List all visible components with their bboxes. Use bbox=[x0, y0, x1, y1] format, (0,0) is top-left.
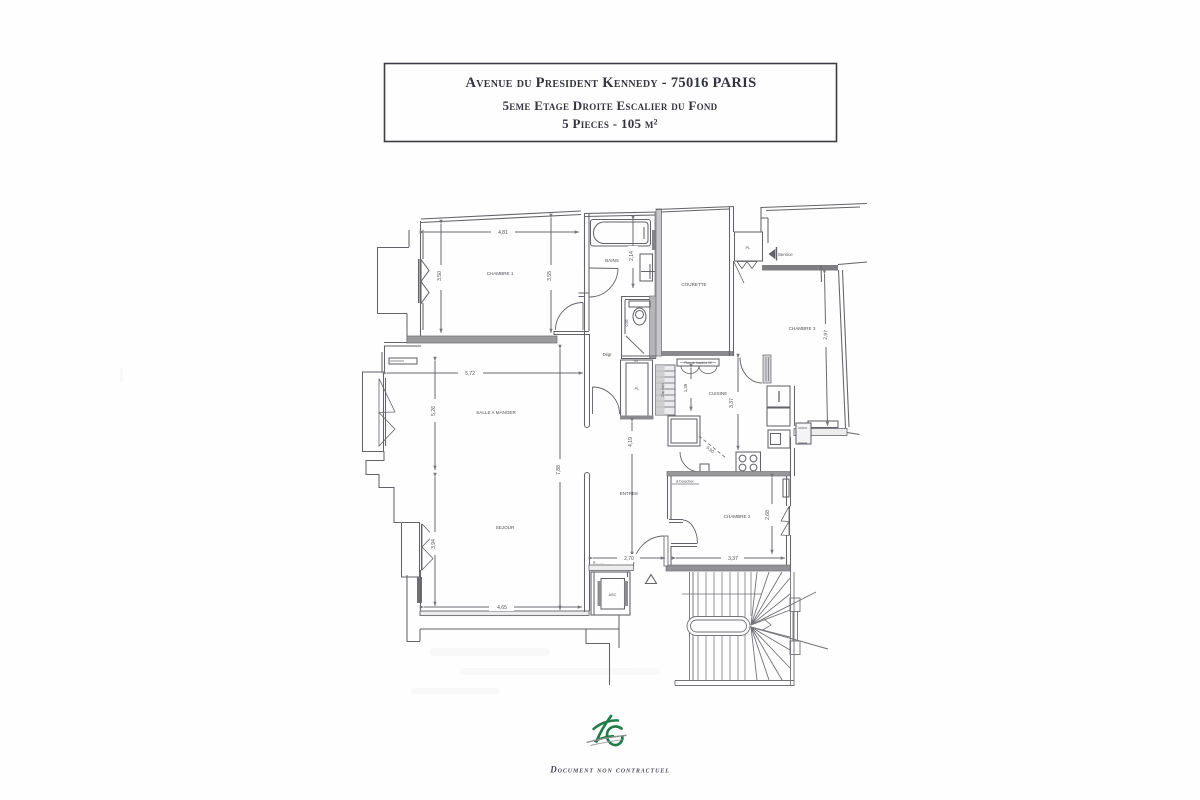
svg-text:SEJOUR: SEJOUR bbox=[496, 525, 515, 530]
svg-text:Avenue du President Kennedy -: Avenue du President Kennedy - 75016 PARI… bbox=[466, 75, 757, 91]
svg-text:4,81: 4,81 bbox=[498, 230, 508, 236]
svg-text:Document non contractuel: Document non contractuel bbox=[549, 765, 670, 775]
svg-text:4,19: 4,19 bbox=[628, 437, 634, 447]
svg-text:3,55: 3,55 bbox=[547, 271, 553, 281]
svg-text:3,37: 3,37 bbox=[728, 556, 738, 562]
svg-text:PL: PL bbox=[635, 386, 641, 391]
svg-text:ENTREE: ENTREE bbox=[620, 491, 639, 496]
svg-text:CHAMBRE 2: CHAMBRE 2 bbox=[724, 514, 751, 519]
svg-text:3,50: 3,50 bbox=[437, 271, 443, 281]
svg-text:à boucher: à boucher bbox=[676, 479, 694, 484]
svg-text:1,35: 1,35 bbox=[683, 383, 688, 392]
svg-text:Plan de travail à 90: Plan de travail à 90 bbox=[684, 361, 712, 365]
svg-text:2,97: 2,97 bbox=[823, 330, 830, 340]
svg-text:4,65: 4,65 bbox=[497, 605, 507, 611]
svg-text:R.........: R......... bbox=[593, 561, 604, 565]
svg-text:95: 95 bbox=[634, 359, 638, 363]
svg-text:ASC: ASC bbox=[609, 593, 617, 597]
svg-text:5 Pieces - 105 m²: 5 Pieces - 105 m² bbox=[562, 116, 658, 131]
svg-text:Service: Service bbox=[778, 252, 793, 257]
svg-text:3,37: 3,37 bbox=[729, 398, 735, 408]
svg-text:3,94: 3,94 bbox=[431, 539, 437, 549]
svg-text:0,85: 0,85 bbox=[625, 320, 629, 327]
svg-text:2,70: 2,70 bbox=[624, 556, 634, 562]
svg-text:2,14: 2,14 bbox=[629, 251, 635, 261]
svg-text:5eme Etage Droite Escalier du: 5eme Etage Droite Escalier du Fond bbox=[503, 98, 718, 113]
svg-text:CHAMBRE 3: CHAMBRE 3 bbox=[789, 326, 816, 331]
svg-text:COURETTE: COURETTE bbox=[681, 282, 706, 287]
svg-text:CHAMBRE 1: CHAMBRE 1 bbox=[487, 271, 514, 276]
svg-text:BAINS: BAINS bbox=[605, 258, 619, 263]
svg-text:CUISINE: CUISINE bbox=[709, 391, 728, 396]
svg-text:7,88: 7,88 bbox=[556, 465, 562, 475]
svg-text:Dégt: Dégt bbox=[603, 352, 613, 357]
svg-text:SALLE A MANGER: SALLE A MANGER bbox=[476, 410, 516, 415]
svg-text:5,26: 5,26 bbox=[431, 406, 437, 416]
svg-text:Zinc évier: Zinc évier bbox=[661, 382, 665, 397]
svg-text:PL: PL bbox=[746, 245, 752, 250]
svg-text:0,90: 0,90 bbox=[705, 445, 715, 455]
svg-text:2,68: 2,68 bbox=[765, 510, 771, 520]
svg-text:5,72: 5,72 bbox=[465, 371, 475, 377]
